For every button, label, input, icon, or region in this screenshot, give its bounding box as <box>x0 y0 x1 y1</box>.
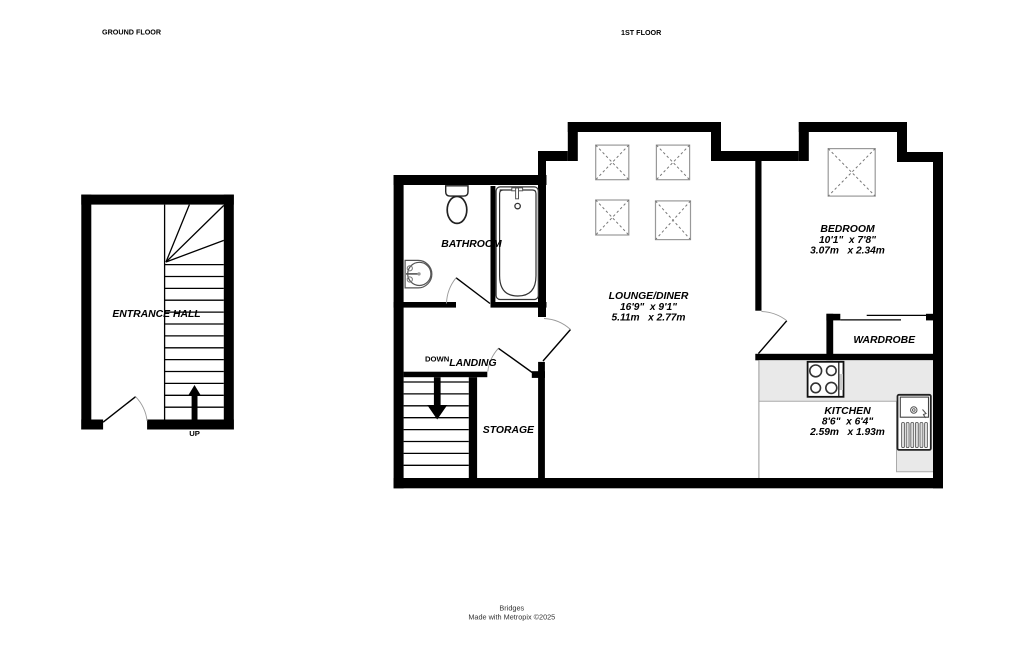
svg-text:STORAGE: STORAGE <box>483 425 535 436</box>
svg-text:3.07m x 2.34m: 3.07m x 2.34m <box>810 245 885 256</box>
svg-text:16'9" x 9'1": 16'9" x 9'1" <box>620 302 677 313</box>
svg-text:UP: UP <box>189 429 200 438</box>
svg-text:BEDROOM: BEDROOM <box>820 224 875 235</box>
svg-text:KITCHEN: KITCHEN <box>824 406 871 417</box>
svg-text:LOUNGE/DINER: LOUNGE/DINER <box>609 291 689 302</box>
svg-text:Bridges: Bridges <box>499 604 524 613</box>
svg-text:GROUND FLOOR: GROUND FLOOR <box>102 28 162 37</box>
svg-text:LANDING: LANDING <box>449 358 496 369</box>
svg-text:DOWN: DOWN <box>425 354 450 363</box>
svg-text:8'6" x 6'4": 8'6" x 6'4" <box>822 417 873 428</box>
svg-text:5.11m x 2.77m: 5.11m x 2.77m <box>611 312 685 323</box>
svg-text:10'1" x 7'8": 10'1" x 7'8" <box>819 235 876 246</box>
svg-text:ENTRANCE HALL: ENTRANCE HALL <box>112 309 200 320</box>
svg-text:BATHROOM: BATHROOM <box>441 239 502 250</box>
svg-text:Made with Metropix ©2025: Made with Metropix ©2025 <box>468 612 555 621</box>
svg-text:2.59m x 1.93m: 2.59m x 1.93m <box>809 427 885 438</box>
svg-text:1ST FLOOR: 1ST FLOOR <box>621 28 662 37</box>
svg-text:WARDROBE: WARDROBE <box>853 335 916 346</box>
